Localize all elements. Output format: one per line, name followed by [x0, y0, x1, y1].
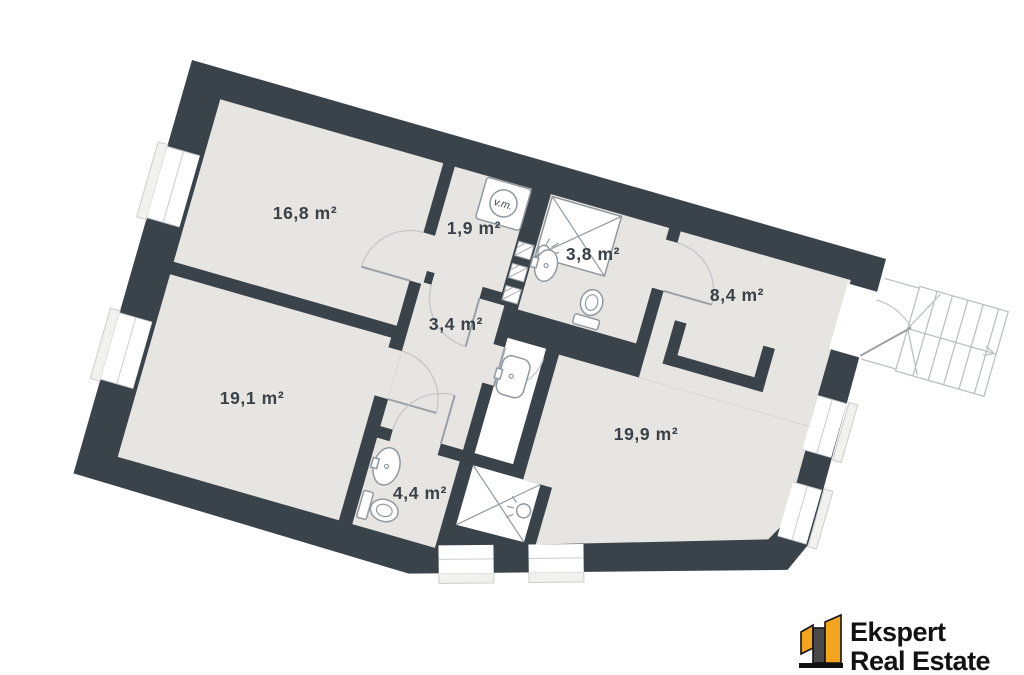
- room-label-8-4: 8,4 m²: [710, 285, 764, 305]
- floor-plan-page: v.m.: [0, 0, 1024, 675]
- room-label-1-9: 1,9 m²: [447, 218, 501, 238]
- room-label-3-4: 3,4 m²: [429, 314, 483, 334]
- logo-text-line2: Real Estate: [850, 646, 991, 675]
- logo-buildings-icon: [799, 615, 843, 668]
- logo-text-line1: Ekspert: [850, 617, 946, 647]
- room-label-3-8: 3,8 m²: [566, 244, 620, 264]
- floor-plan: v.m.: [62, 57, 1012, 675]
- logo: Ekspert Real Estate: [799, 615, 991, 675]
- room-label-16-8: 16,8 m²: [273, 203, 338, 223]
- room-label-19-9: 19,9 m²: [614, 424, 679, 444]
- room-label-4-4: 4,4 m²: [393, 483, 447, 503]
- floor-plan-canvas: v.m.: [0, 0, 1024, 675]
- room-label-19-1: 19,1 m²: [220, 388, 285, 408]
